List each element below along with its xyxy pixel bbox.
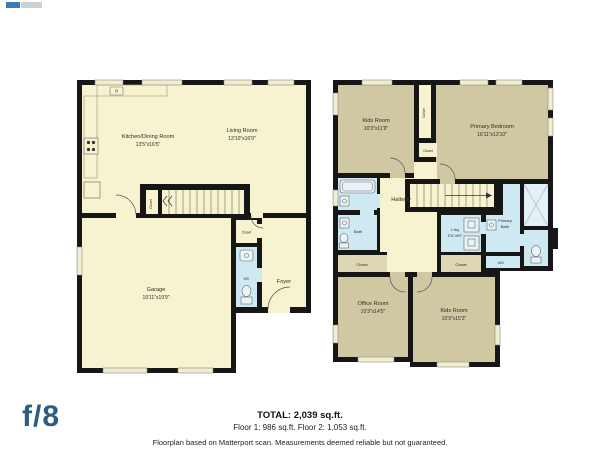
primary-bath-sink-icon — [487, 220, 496, 230]
floorplan-floor2: Kids Room 10'3"x11'9" Primary Bedroom 16… — [333, 80, 558, 367]
label-closet-strip: Closet — [422, 108, 426, 118]
label-garage-dims: 19'11"x19'9" — [142, 295, 169, 301]
label-hallway: Hallway — [391, 197, 411, 203]
label-kids-top: Kids Room — [362, 118, 390, 124]
label-closet-f1: Closet — [242, 231, 252, 235]
label-primary-bath-2: Bath — [501, 224, 509, 229]
floor-areas-text: Floor 1: 986 sq.ft. Floor 2: 1,053 sq.ft… — [0, 423, 600, 432]
label-garage: Garage — [147, 287, 166, 293]
label-wc: WC — [244, 277, 250, 281]
floorplan-floor1: Kitchen/Dining Room 13'5"x16'5" Living R… — [77, 80, 311, 373]
label-living: Living Room — [226, 128, 257, 134]
disclaimer-text: Floorplan based on Matterport scan. Meas… — [0, 438, 600, 447]
label-office: Office Room — [358, 301, 389, 307]
label-office-dims: 10'3"x14'5" — [361, 309, 386, 315]
label-kids-bottom: Kids Room — [440, 308, 468, 314]
label-primary-bath-1: Primary — [498, 218, 512, 223]
label-closet-bottom-center: Closet — [455, 262, 467, 267]
bathtub-icon — [340, 180, 375, 193]
label-wic: WIC — [498, 261, 505, 265]
kitchen-sink-icon — [110, 87, 123, 95]
washer-icon — [464, 218, 479, 232]
stairs-floor1 — [140, 184, 250, 218]
label-kids-top-dims: 10'3"x11'9" — [364, 126, 388, 132]
room-garage — [82, 218, 231, 368]
label-stair-closet: Closet — [149, 199, 153, 209]
bath-toilet-icon — [340, 234, 349, 249]
label-kitchen-dims: 13'5"x16'5" — [136, 142, 161, 148]
floorplans-svg: Kitchen/Dining Room 13'5"x16'5" Living R… — [0, 0, 600, 450]
f8-logo: f/8 — [22, 400, 60, 434]
label-kids-bottom-dims: 10'9"x15'3" — [442, 316, 467, 322]
floor2-wall-bump — [553, 228, 558, 249]
label-living-dims: 13'10"x16'9" — [228, 136, 256, 142]
wc-sink-icon — [240, 250, 253, 261]
dryer-icon — [464, 236, 479, 250]
label-laundry: L'dry — [451, 227, 460, 232]
label-bath: Bath — [354, 229, 362, 234]
label-primary-bedroom-dims: 16'11"x13'10" — [477, 132, 507, 138]
label-laundry-dims: 5'11"x5'9" — [448, 234, 463, 238]
dishwasher-icon — [84, 182, 100, 198]
room-primary-bath-upper — [503, 184, 520, 215]
total-area-text: TOTAL: 2,039 sq.ft. — [0, 410, 600, 421]
toilet-room-toilet-icon — [531, 246, 541, 264]
label-closet-small: Closet — [423, 149, 433, 153]
label-primary-bedroom: Primary Bedroom — [470, 124, 514, 130]
room-corridor — [387, 252, 437, 272]
floorplan-page: Kitchen/Dining Room 13'5"x16'5" Living R… — [0, 0, 600, 450]
label-kitchen: Kitchen/Dining Room — [122, 134, 175, 140]
room-foyer — [262, 218, 306, 307]
label-closet-bottom-left: Closet — [356, 262, 368, 267]
stove-icon — [84, 138, 98, 154]
label-foyer: Foyer — [277, 279, 291, 285]
room-office — [338, 277, 408, 357]
